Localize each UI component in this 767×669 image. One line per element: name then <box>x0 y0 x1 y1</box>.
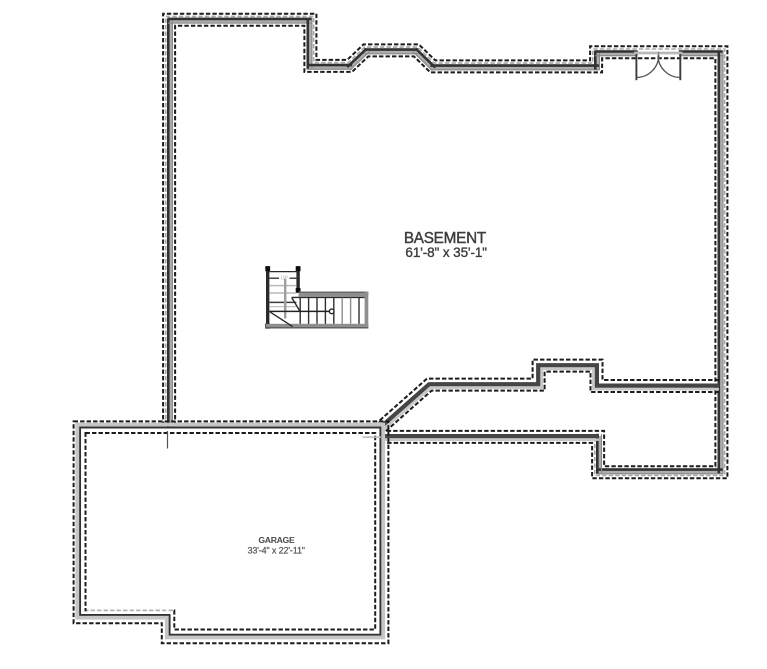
svg-text:61'-8" x 35'-1": 61'-8" x 35'-1" <box>405 245 487 260</box>
svg-text:33'-4" x 22'-11": 33'-4" x 22'-11" <box>248 545 305 555</box>
svg-text:GARAGE: GARAGE <box>258 535 295 545</box>
